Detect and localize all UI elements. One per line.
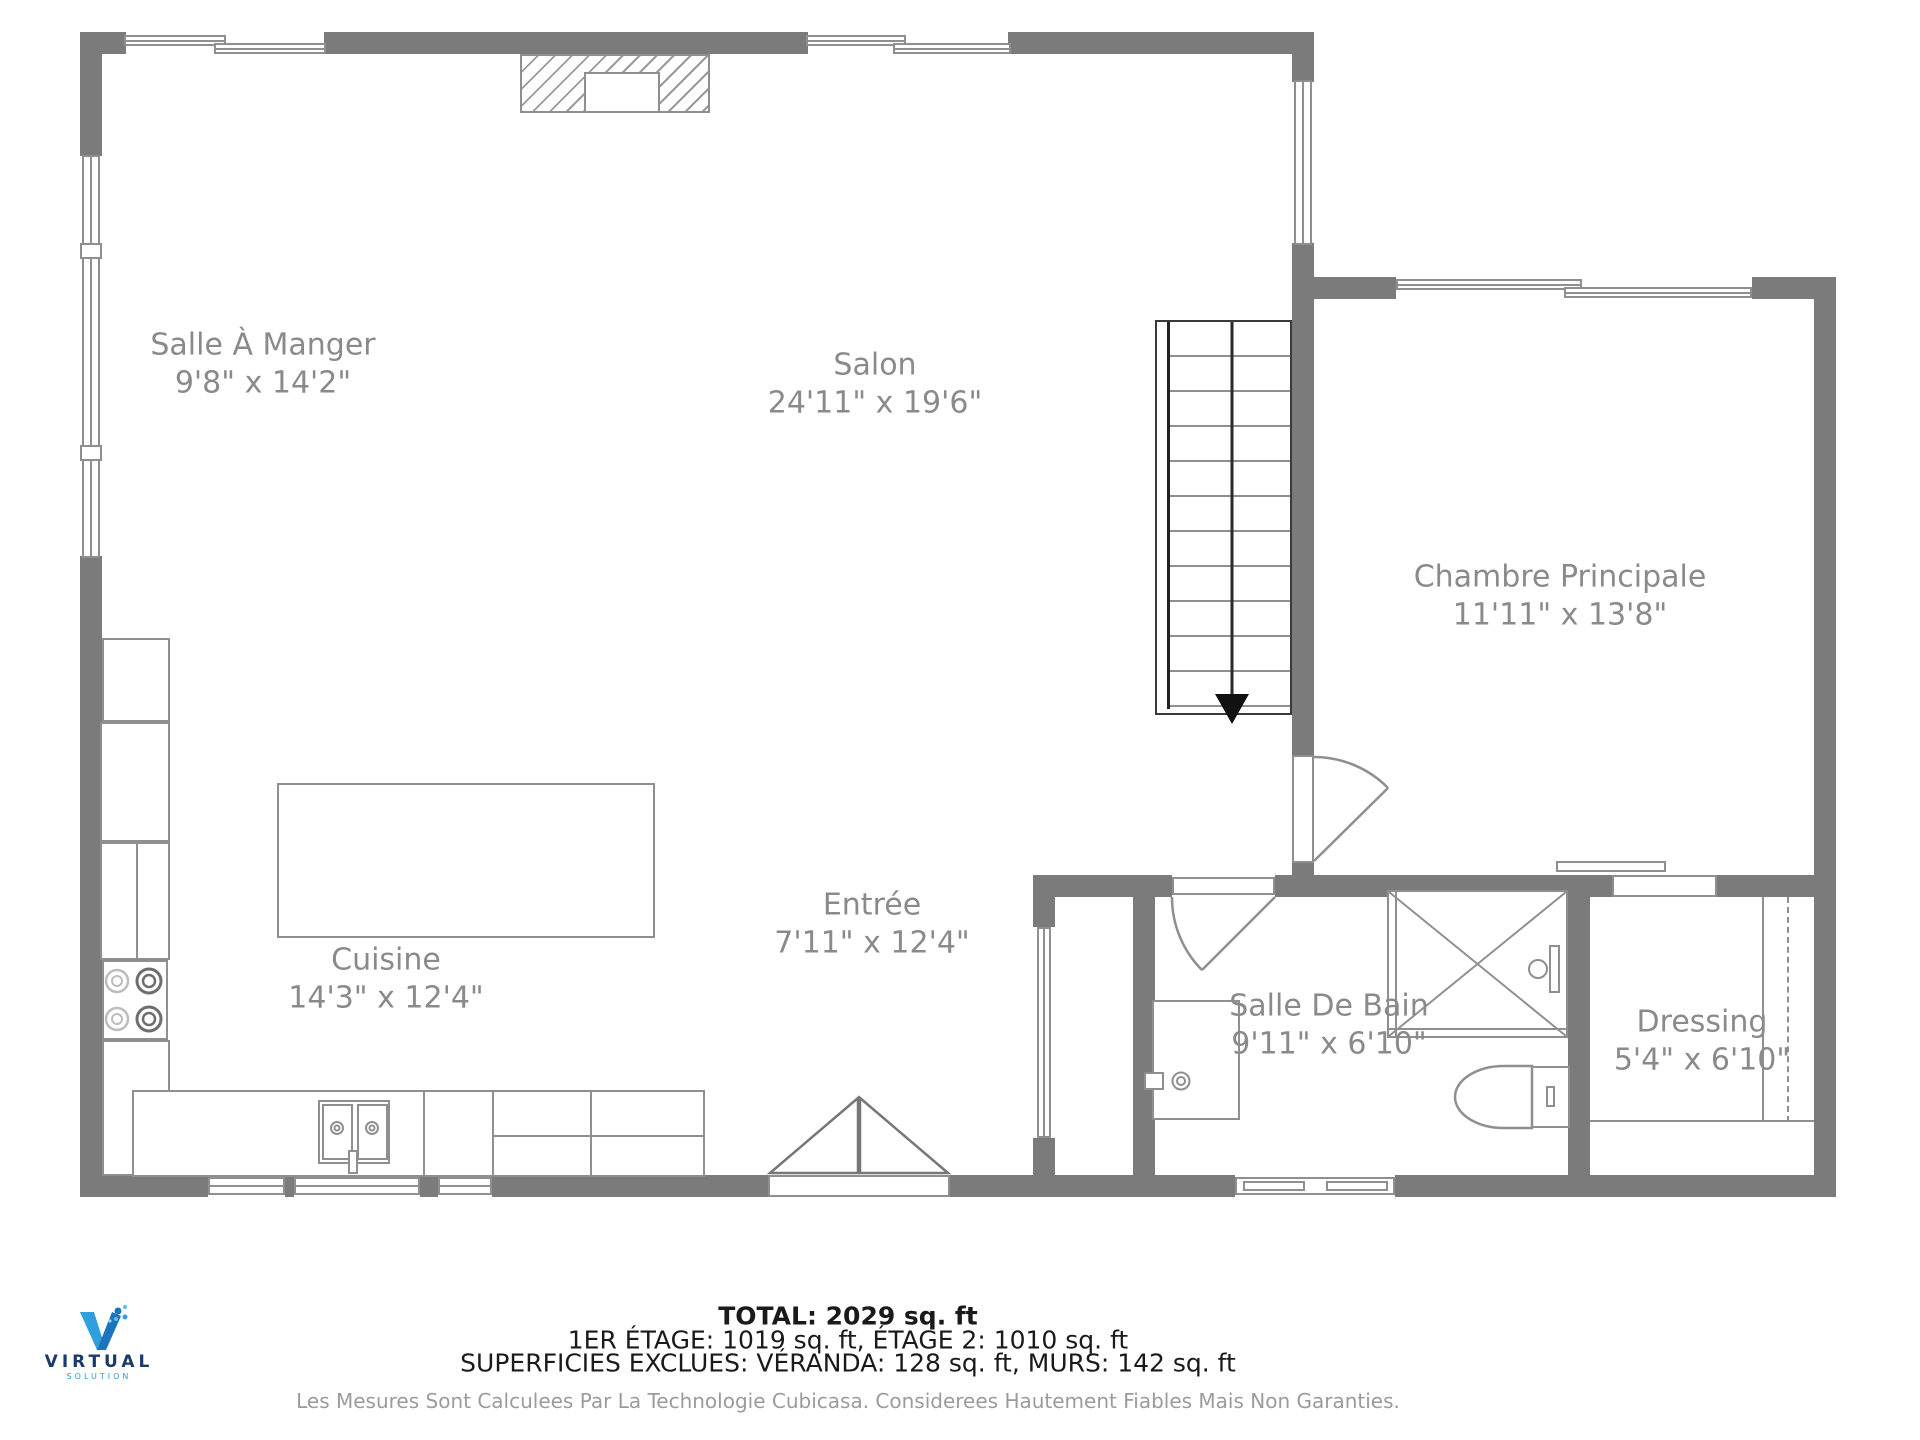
wall-segment <box>1008 32 1314 54</box>
room-label-salon: Salon <box>833 348 916 383</box>
cooktop <box>102 960 168 1040</box>
wall-segment <box>80 556 102 1197</box>
closet-line <box>1590 1120 1814 1122</box>
window-pane <box>1326 1181 1388 1191</box>
window <box>124 35 226 46</box>
refrigerator <box>102 638 170 722</box>
kitchen-cabinet <box>100 722 170 842</box>
wall-segment <box>1292 243 1314 300</box>
wall-segment <box>1033 1138 1055 1175</box>
wall-segment <box>1395 1175 1836 1197</box>
counter-edge <box>136 844 138 958</box>
staircase <box>1155 320 1292 715</box>
toilet-bowl-icon <box>1455 1066 1532 1128</box>
room-label-entree: Entrée <box>823 888 921 923</box>
counter-edge <box>423 1092 425 1175</box>
room-dims-salon: 24'11" x 19'6" <box>768 386 983 421</box>
disclaimer-text: Les Mesures Sont Calculees Par La Techno… <box>296 1389 1400 1413</box>
fireplace-insert <box>584 72 660 113</box>
entry-door-opening <box>768 1175 950 1197</box>
wall-segment <box>285 1175 294 1197</box>
toilet-flush-button <box>1546 1086 1555 1107</box>
wall-segment <box>950 1175 1235 1197</box>
room-dims-entree: 7'11" x 12'4" <box>774 926 969 961</box>
room-dims-salle-de-bain: 9'11" x 6'10" <box>1231 1027 1426 1062</box>
window <box>893 43 1011 54</box>
logo-v-icon <box>72 1304 132 1354</box>
vanity-faucet <box>1144 1072 1164 1090</box>
window-sill <box>80 445 102 461</box>
bathroom-vanity <box>1152 1000 1240 1120</box>
wall-segment <box>492 1175 768 1197</box>
dressing-door-opening <box>1612 875 1717 897</box>
appliance-divider <box>492 1135 703 1137</box>
window-pane <box>1243 1181 1305 1191</box>
wall-segment <box>1033 875 1055 927</box>
wall-segment <box>324 32 478 54</box>
wall-segment <box>1292 298 1314 757</box>
bathroom-door-opening <box>1172 877 1275 895</box>
sink-basin <box>357 1104 388 1160</box>
closet-rod <box>1787 897 1789 1122</box>
logo-brand-text: VIRTUAL <box>45 1352 154 1372</box>
wall-segment <box>1717 875 1836 897</box>
dressing-sliding-door-leaf <box>1556 861 1666 872</box>
wall-segment <box>478 32 808 54</box>
wall-segment <box>1314 277 1396 299</box>
bathroom-door-icon <box>1172 897 1275 970</box>
bedroom-door-icon <box>1314 757 1388 861</box>
room-dims-cuisine: 14'3" x 12'4" <box>288 981 483 1016</box>
excluded-areas-text: SUPERFICIES EXCLUES: VÉRANDA: 128 sq. ft… <box>460 1349 1236 1378</box>
wall-segment <box>1292 32 1314 82</box>
kitchen-counter <box>100 842 170 960</box>
wall-segment <box>1568 897 1590 1177</box>
counter-edge <box>590 1092 592 1175</box>
room-dims-dressing: 5'4" x 6'10" <box>1614 1043 1790 1078</box>
window <box>208 1177 285 1195</box>
window <box>1294 80 1312 245</box>
wall-segment <box>1814 277 1836 1197</box>
sink-faucet <box>348 1150 358 1174</box>
room-label-cuisine: Cuisine <box>331 943 441 978</box>
window <box>1396 279 1582 290</box>
floor-plan: Salle À Manger 9'8" x 14'2" Salon 24'11"… <box>0 0 1920 1440</box>
room-label-salle-a-manger: Salle À Manger <box>150 328 375 363</box>
window <box>1037 927 1051 1138</box>
counter-edge <box>492 1092 494 1175</box>
window <box>806 35 906 46</box>
room-dims-salle-a-manger: 9'8" x 14'2" <box>175 366 351 401</box>
room-label-chambre-principale: Chambre Principale <box>1414 560 1707 595</box>
wall-segment <box>420 1175 438 1197</box>
window <box>1564 287 1752 298</box>
kitchen-counter <box>132 1090 705 1177</box>
window <box>214 43 326 54</box>
stair-treads <box>1170 322 1290 713</box>
room-dims-chambre-principale: 11'11" x 13'8" <box>1453 598 1668 633</box>
entry-double-door-icon <box>770 1098 948 1173</box>
window <box>294 1177 420 1195</box>
bedroom-door-opening <box>1292 755 1314 863</box>
room-label-salle-de-bain: Salle De Bain <box>1229 989 1429 1024</box>
window-sill <box>80 243 102 259</box>
wall-segment <box>80 1175 208 1197</box>
plan-symbols <box>0 0 1920 1440</box>
fireplace <box>520 54 710 113</box>
window <box>438 1177 492 1195</box>
kitchen-island <box>277 783 655 938</box>
wall-segment <box>80 32 102 156</box>
logo-tagline-text: SOLUTION <box>67 1372 132 1381</box>
window <box>82 155 100 558</box>
room-label-dressing: Dressing <box>1637 1005 1768 1040</box>
